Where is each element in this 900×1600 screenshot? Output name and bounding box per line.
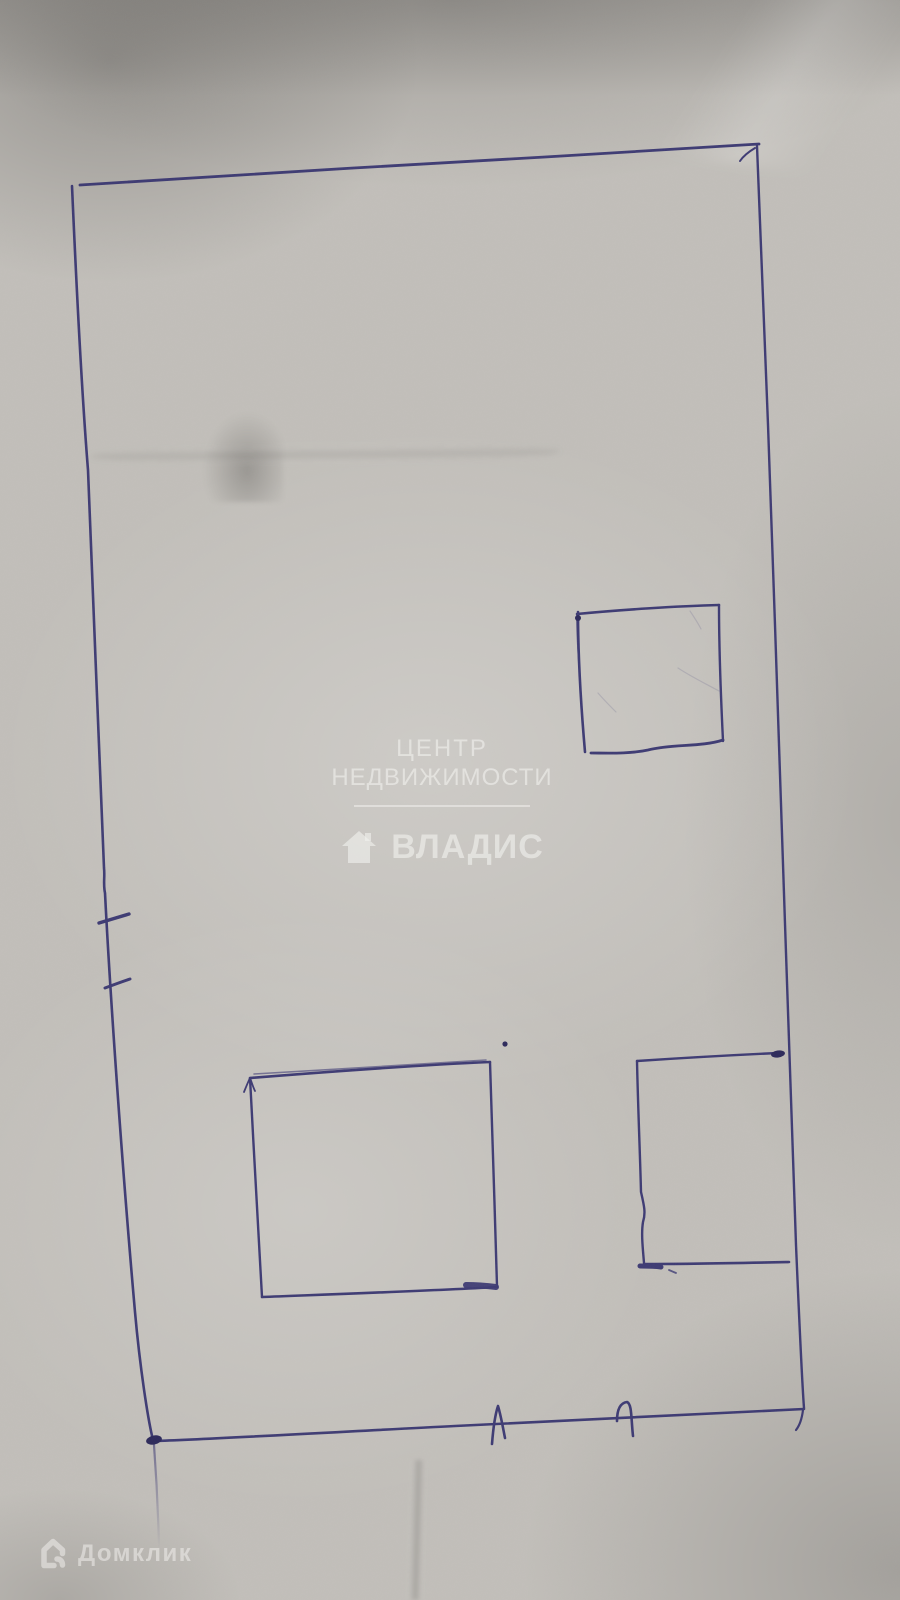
house-outline-icon <box>37 1538 69 1569</box>
watermark-title-line1: ЦЕНТР <box>292 737 592 761</box>
floor-plan-photo: ЦЕНТР НЕДВИЖИМОСТИ ВЛАДИС Домклик <box>0 0 900 1600</box>
house-icon <box>340 829 378 864</box>
domklik-label: Домклик <box>78 1542 192 1566</box>
watermark-brand: ВЛАДИС <box>391 830 544 864</box>
domklik-logo: Домклик <box>37 1538 192 1569</box>
watermark-brand-row: ВЛАДИС <box>292 829 592 864</box>
watermark-divider <box>354 805 530 807</box>
watermark-title-line2: НЕДВИЖИМОСТИ <box>292 766 592 790</box>
vladis-watermark: ЦЕНТР НЕДВИЖИМОСТИ ВЛАДИС <box>292 737 592 864</box>
